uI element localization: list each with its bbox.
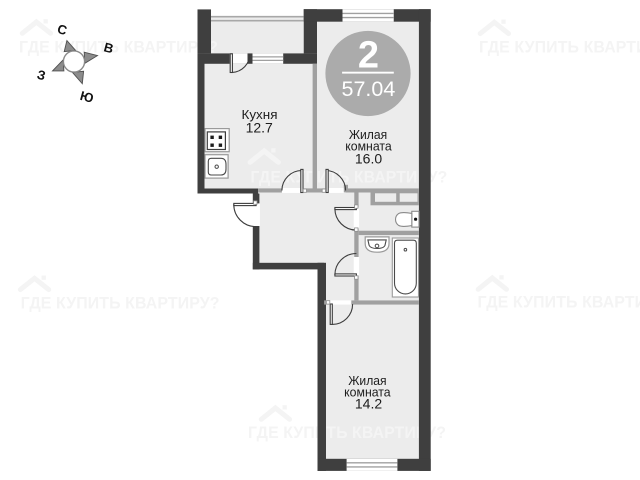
svg-text:ГДЕ КУПИТЬ КВАРТИРУ?: ГДЕ КУПИТЬ КВАРТИРУ? [19, 37, 218, 56]
svg-text:14.2: 14.2 [355, 395, 382, 411]
svg-text:ГДЕ КУПИТЬ КВАРТИРУ?: ГДЕ КУПИТЬ КВАРТИРУ? [21, 293, 220, 312]
svg-text:ГДЕ КУПИТЬ КВАРТИРУ?: ГДЕ КУПИТЬ КВАРТИРУ? [250, 167, 447, 186]
svg-text:ГДЕ КУПИТЬ КВАРТИРУ?: ГДЕ КУПИТЬ КВАРТИРУ? [248, 423, 446, 442]
svg-text:2: 2 [358, 35, 379, 77]
svg-text:57.04: 57.04 [341, 77, 395, 101]
svg-text:ГДЕ КУПИТЬ КВАРТИРУ?: ГДЕ КУПИТЬ КВАРТИРУ? [479, 37, 640, 56]
svg-text:12.7: 12.7 [246, 119, 273, 135]
svg-text:ГДЕ КУПИТЬ КВАРТИРУ?: ГДЕ КУПИТЬ КВАРТИРУ? [478, 293, 640, 312]
svg-text:16.0: 16.0 [355, 150, 382, 166]
